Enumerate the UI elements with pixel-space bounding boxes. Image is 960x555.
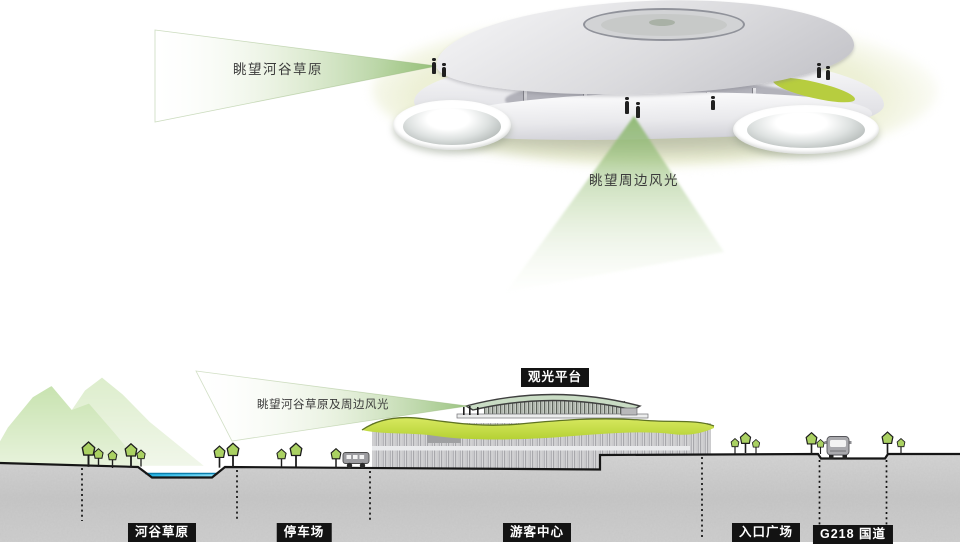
zone-label-visitor-center: 游客中心 — [503, 523, 571, 542]
tree-icon — [108, 451, 117, 468]
zone-label-g218-road: G218 国道 — [813, 525, 893, 544]
tree-icon — [82, 442, 94, 467]
tree-icon — [214, 446, 225, 468]
tree-icon — [94, 449, 103, 467]
zone-label-parking: 停车场 — [277, 523, 332, 542]
view-cone-section-label: 眺望河谷草原及周边风光 — [257, 396, 389, 412]
zone-label-valley: 河谷草原 — [128, 523, 196, 542]
tree-icon — [817, 440, 824, 455]
trees — [82, 432, 905, 468]
tree-icon — [752, 440, 759, 455]
tree-icon — [137, 450, 145, 467]
tree-icon — [227, 443, 239, 466]
tree-icon — [331, 449, 341, 468]
bus-icon — [343, 453, 369, 469]
tree-icon — [882, 432, 893, 454]
tree-icon — [740, 433, 750, 453]
tree-icon — [125, 444, 137, 467]
tree-icon — [277, 449, 286, 467]
section-annotations — [0, 0, 960, 555]
architecture-diagram: 眺望河谷草原 眺望周边风光 — [0, 0, 960, 555]
tree-icon — [897, 439, 905, 454]
zone-label-entrance-plaza: 入口广场 — [732, 523, 800, 542]
tree-icon — [731, 439, 739, 454]
platform-label: 观光平台 — [521, 368, 589, 387]
tree-icon — [806, 433, 817, 454]
vehicle-icon — [825, 437, 852, 460]
tree-icon — [290, 443, 302, 466]
